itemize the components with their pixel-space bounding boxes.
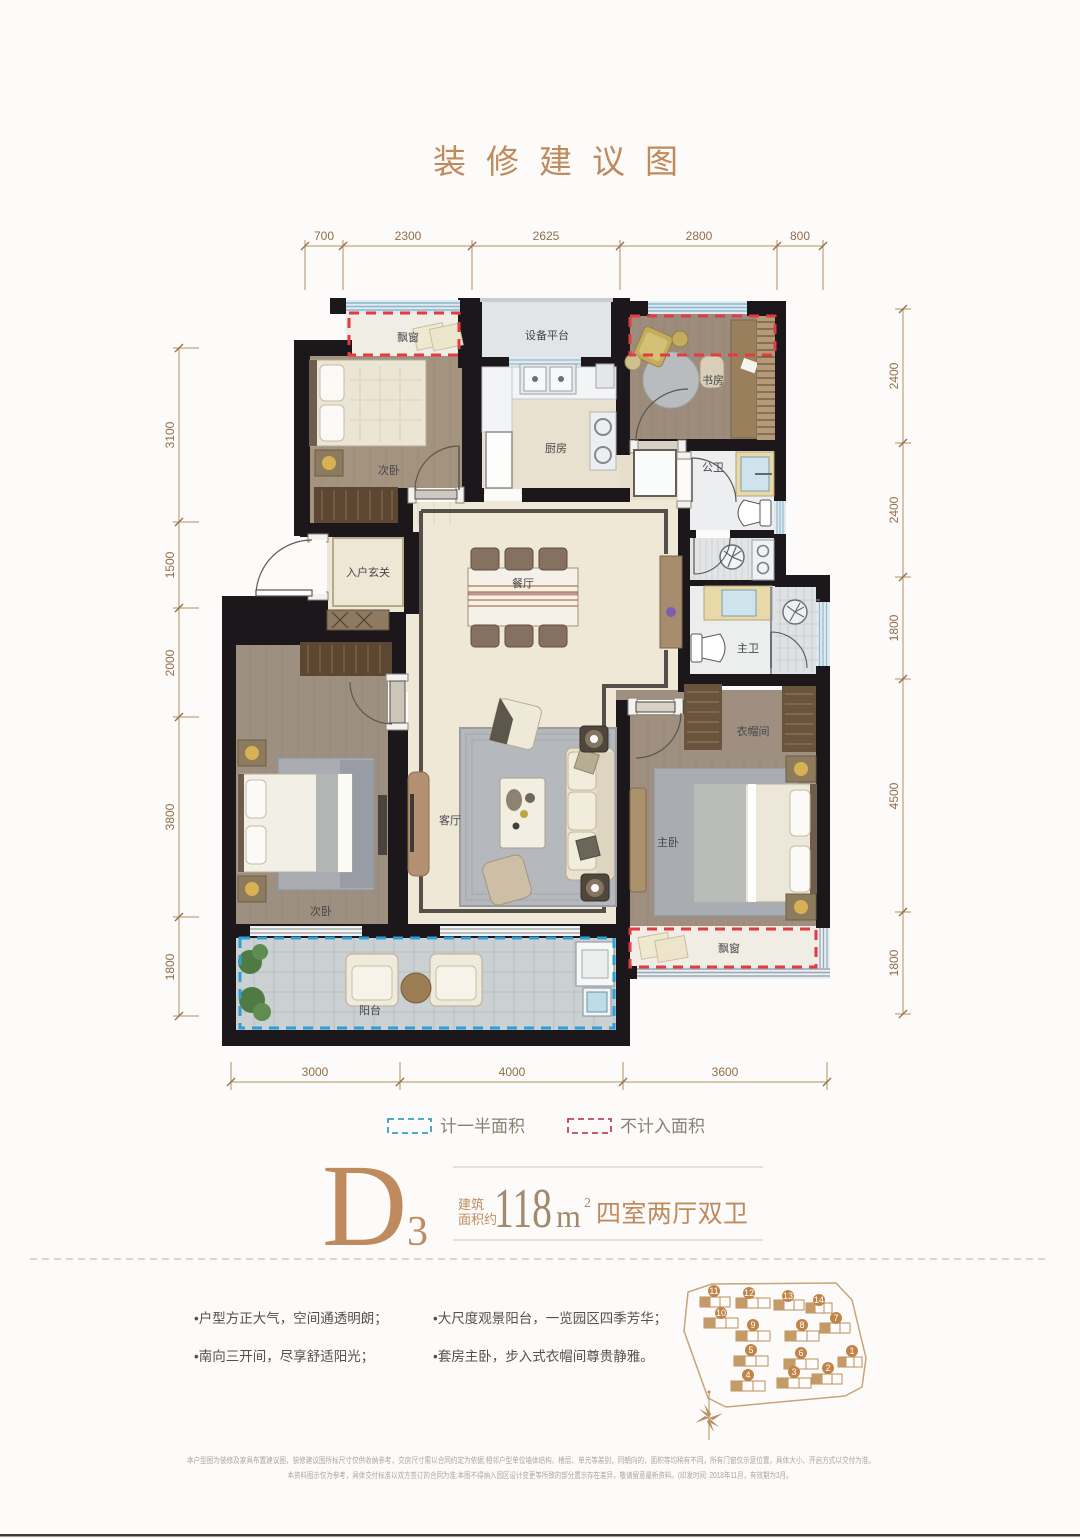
svg-text:5: 5 bbox=[748, 1345, 753, 1355]
svg-text:2625: 2625 bbox=[533, 229, 560, 243]
svg-text:阳台: 阳台 bbox=[359, 1003, 381, 1017]
svg-text:2400: 2400 bbox=[887, 496, 901, 523]
svg-text:8: 8 bbox=[799, 1320, 804, 1330]
svg-text:客厅: 客厅 bbox=[439, 813, 461, 827]
svg-text:主卫: 主卫 bbox=[737, 642, 759, 655]
svg-text:700: 700 bbox=[314, 229, 334, 243]
svg-text:主卧: 主卧 bbox=[657, 836, 679, 849]
svg-text:4: 4 bbox=[745, 1370, 750, 1380]
svg-text:12: 12 bbox=[744, 1288, 754, 1298]
svg-text:次卧: 次卧 bbox=[310, 904, 332, 918]
svg-text:1800: 1800 bbox=[887, 949, 901, 976]
svg-text:2400: 2400 bbox=[887, 362, 901, 389]
svg-text:面积约: 面积约 bbox=[458, 1212, 497, 1227]
svg-text:计一半面积: 计一半面积 bbox=[440, 1117, 525, 1136]
svg-text:本资料图示仅为参考，具体交付标准以双方签订的合同为准;本图不: 本资料图示仅为参考，具体交付标准以双方签订的合同为准;本图不得纳入园区设计变更等… bbox=[288, 1470, 793, 1480]
svg-text:6: 6 bbox=[798, 1348, 803, 1358]
svg-text:装修建议图: 装修建议图 bbox=[433, 143, 698, 180]
svg-text:2000: 2000 bbox=[163, 649, 177, 676]
svg-text:2: 2 bbox=[825, 1363, 830, 1373]
svg-text:13: 13 bbox=[783, 1291, 793, 1301]
svg-text:1: 1 bbox=[849, 1346, 854, 1356]
svg-text:•套房主卧，步入式衣帽间尊贵静雅。: •套房主卧，步入式衣帽间尊贵静雅。 bbox=[433, 1349, 654, 1364]
svg-text:3600: 3600 bbox=[712, 1065, 739, 1079]
svg-text:设备平台: 设备平台 bbox=[525, 328, 569, 342]
svg-text:衣帽间: 衣帽间 bbox=[737, 724, 770, 738]
svg-text:14: 14 bbox=[814, 1295, 824, 1305]
svg-text:•大尺度观景阳台，一览园区四季芳华；: •大尺度观景阳台，一览园区四季芳华； bbox=[433, 1311, 667, 1327]
svg-text:本户型图为装修及家具布置建议图，装修建议图所标尺寸仅供收纳参: 本户型图为装修及家具布置建议图，装修建议图所标尺寸仅供收纳参考，交房尺寸需以合同… bbox=[187, 1455, 875, 1465]
svg-text:10: 10 bbox=[716, 1308, 726, 1318]
svg-text:D: D bbox=[322, 1140, 407, 1271]
svg-text:1800: 1800 bbox=[887, 614, 901, 641]
svg-text:4500: 4500 bbox=[887, 782, 901, 809]
svg-text:3100: 3100 bbox=[163, 421, 177, 448]
svg-text:•户型方正大气，空间通透明朗；: •户型方正大气，空间通透明朗； bbox=[194, 1310, 388, 1327]
svg-text:2800: 2800 bbox=[686, 229, 713, 243]
svg-text:3000: 3000 bbox=[302, 1065, 329, 1079]
svg-text:厨房: 厨房 bbox=[545, 442, 567, 455]
svg-text:•南向三开间，尽享舒适阳光；: •南向三开间，尽享舒适阳光； bbox=[194, 1348, 374, 1365]
svg-text:建筑: 建筑 bbox=[458, 1197, 484, 1212]
svg-text:餐厅: 餐厅 bbox=[512, 576, 534, 590]
svg-text:m: m bbox=[556, 1198, 581, 1234]
svg-text:飘窗: 飘窗 bbox=[718, 941, 740, 955]
svg-text:3800: 3800 bbox=[163, 803, 177, 830]
svg-text:3: 3 bbox=[407, 1209, 428, 1255]
svg-text:书房: 书房 bbox=[702, 374, 724, 387]
svg-text:不计入面积: 不计入面积 bbox=[620, 1117, 705, 1136]
svg-text:1500: 1500 bbox=[163, 551, 177, 578]
svg-text:2300: 2300 bbox=[395, 229, 422, 243]
svg-text:公卫: 公卫 bbox=[702, 462, 724, 474]
svg-text:四室两厅双卫: 四室两厅双卫 bbox=[596, 1200, 748, 1228]
svg-text:1800: 1800 bbox=[163, 953, 177, 980]
svg-text:9: 9 bbox=[750, 1320, 755, 1330]
svg-text:次卧: 次卧 bbox=[378, 463, 400, 477]
svg-text:入户玄关: 入户玄关 bbox=[346, 565, 390, 579]
svg-text:2: 2 bbox=[584, 1196, 591, 1211]
svg-text:3: 3 bbox=[791, 1367, 796, 1377]
svg-text:飘窗: 飘窗 bbox=[397, 330, 419, 344]
svg-text:4000: 4000 bbox=[499, 1065, 526, 1079]
svg-text:800: 800 bbox=[790, 229, 810, 243]
svg-text:11: 11 bbox=[709, 1286, 718, 1296]
svg-text:118: 118 bbox=[494, 1178, 552, 1240]
svg-text:7: 7 bbox=[833, 1313, 838, 1323]
